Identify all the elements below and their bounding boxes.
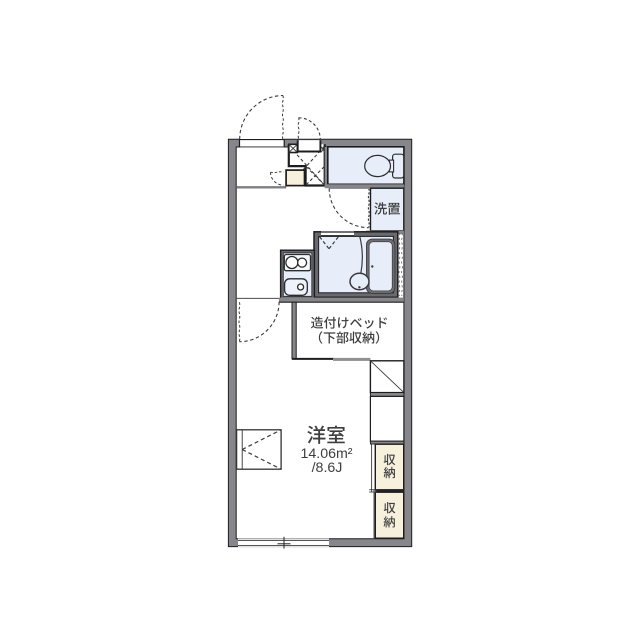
svg-text:/8.6J: /8.6J xyxy=(312,460,343,476)
